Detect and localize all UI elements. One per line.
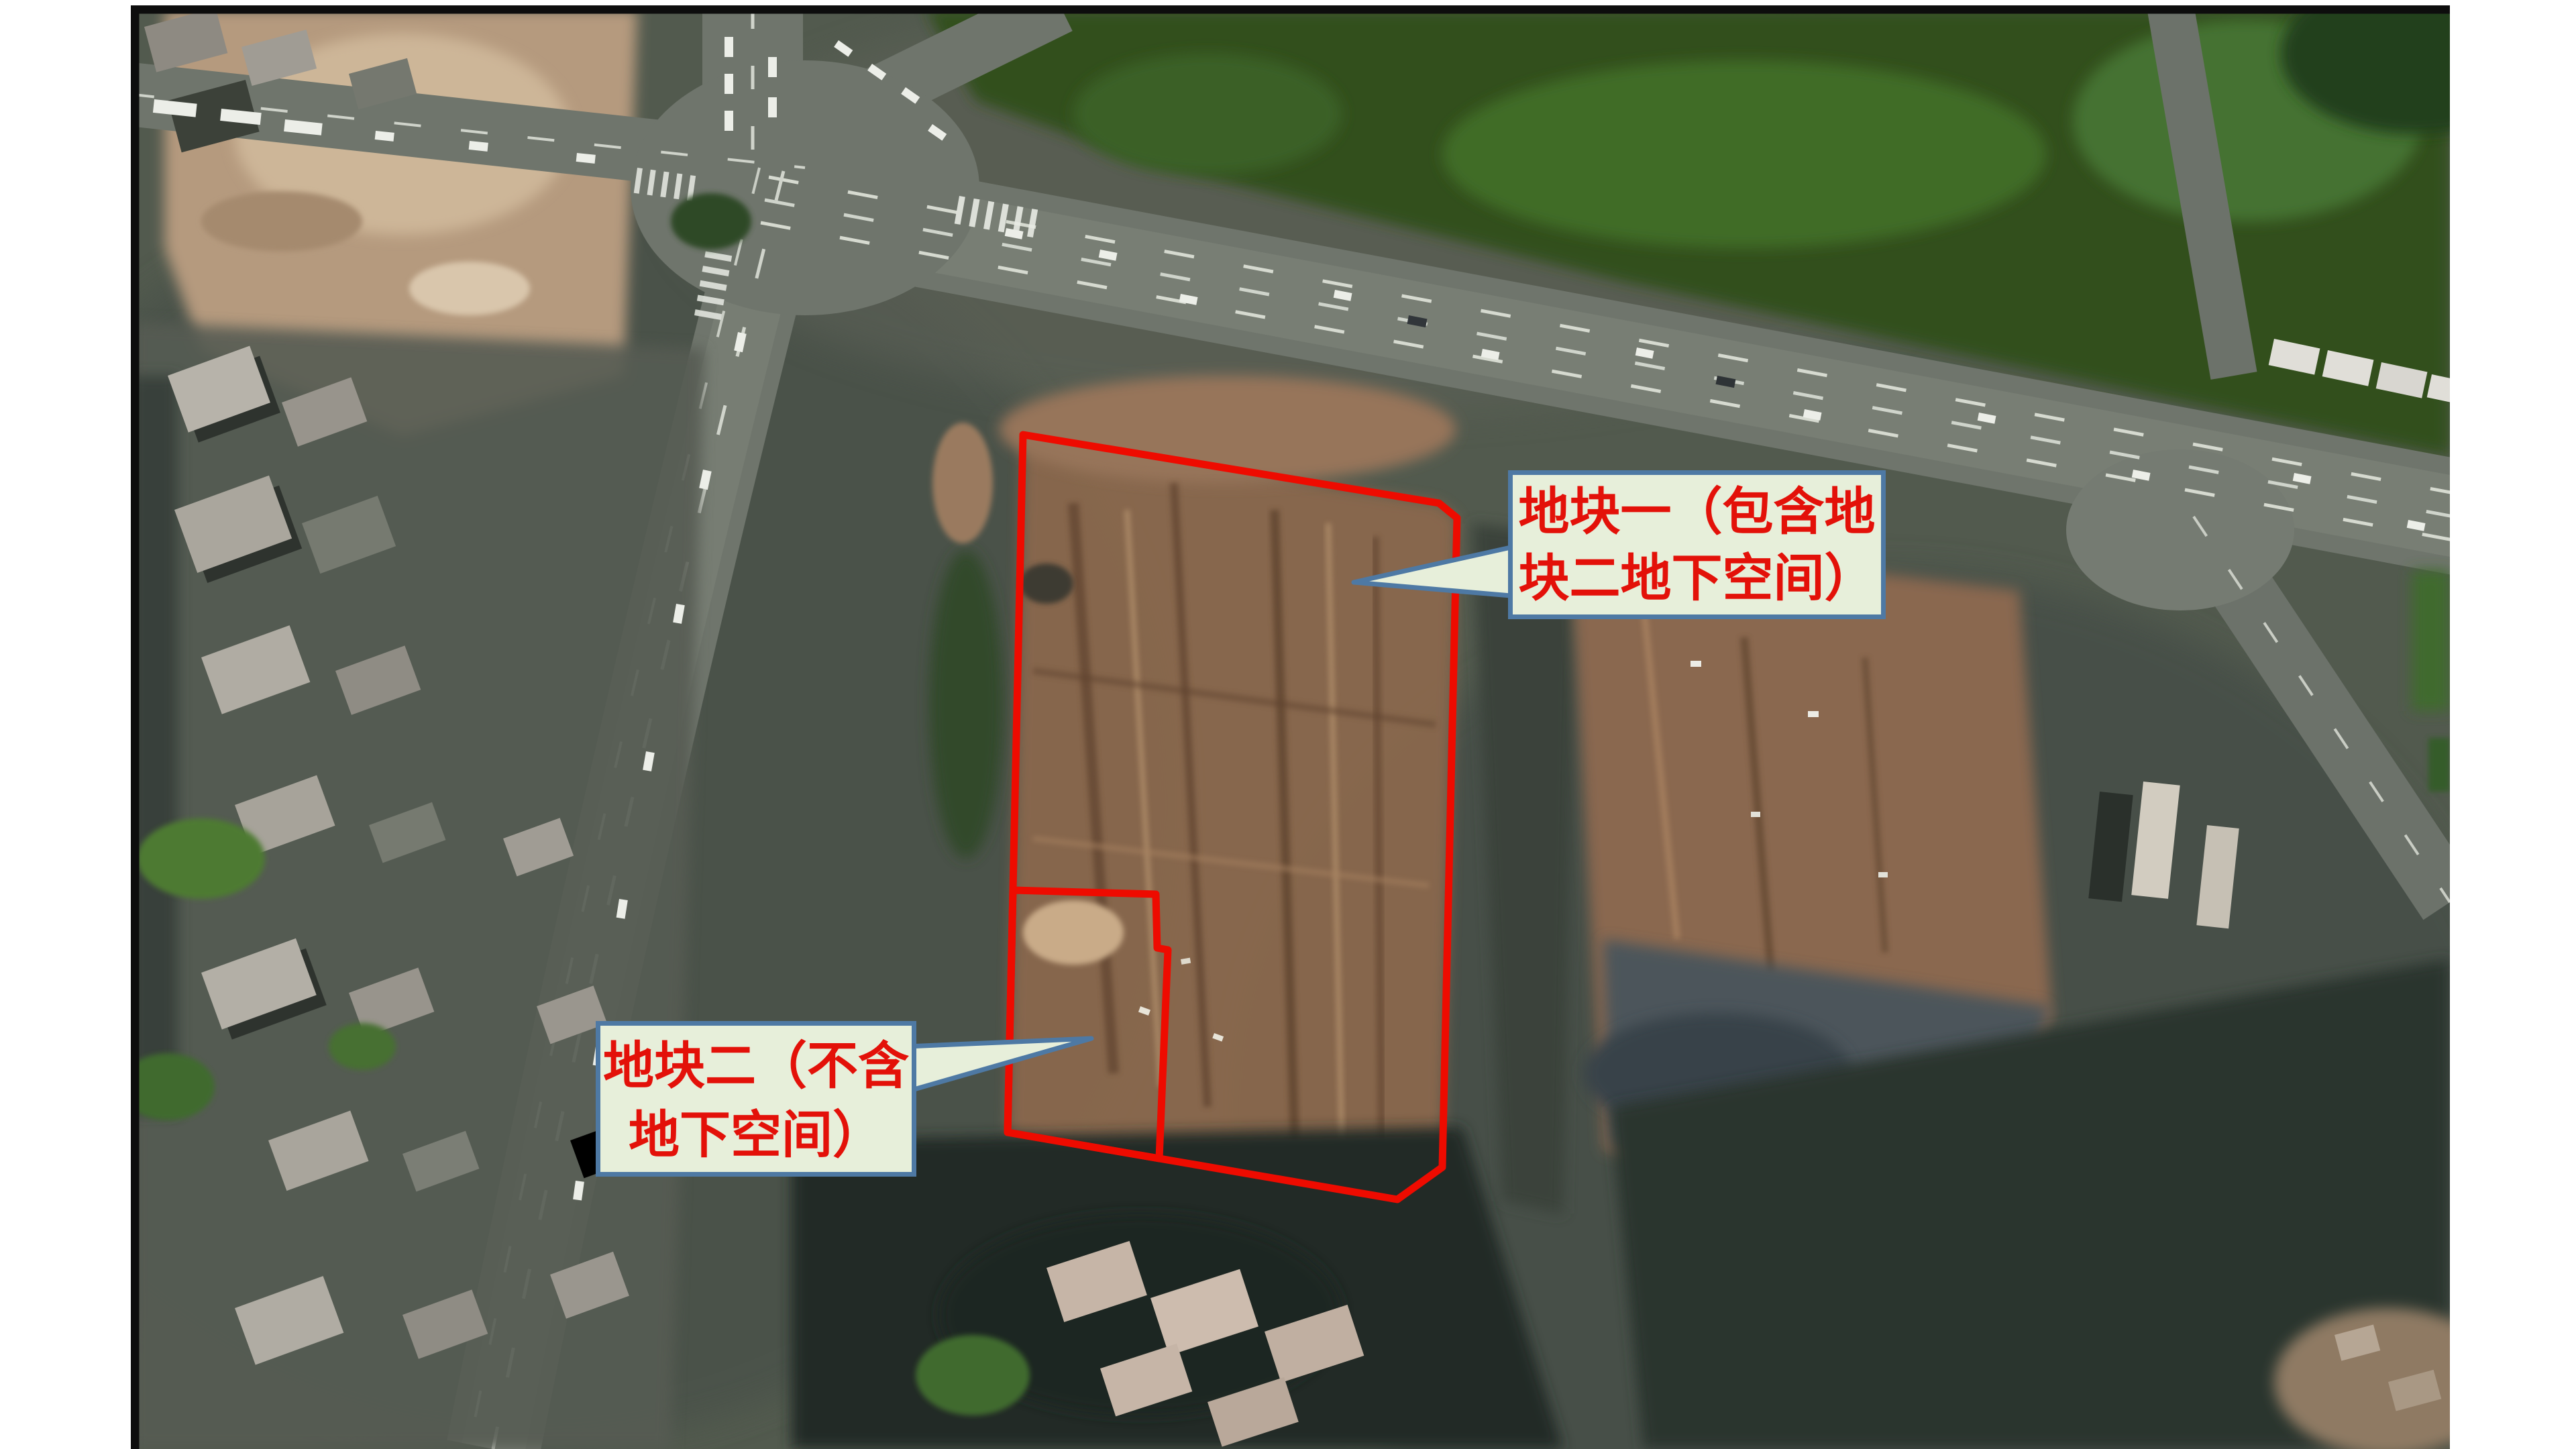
annotation-overlay (0, 0, 2576, 1449)
callout-parcel-2-pointer (907, 1038, 1091, 1091)
slide-canvas: 地块一（包含地 块二地下空间） 地块二（不含 地下空间） (0, 0, 2576, 1449)
callout-parcel-1-pointer (1354, 547, 1511, 596)
callout-parcel-2-line-2: 地下空间） (600, 1101, 912, 1170)
parcel-2-outline (1008, 890, 1168, 1159)
callout-parcel-1-line-1: 地块一（包含地 (1513, 479, 1881, 545)
callout-parcel-2-line-1: 地块二（不含 (600, 1032, 912, 1101)
callout-parcel-2: 地块二（不含 地下空间） (596, 1021, 916, 1177)
callout-parcel-1-line-2: 块二地下空间） (1513, 545, 1881, 612)
callout-parcel-1: 地块一（包含地 块二地下空间） (1508, 470, 1886, 619)
parcel-1-outline (1008, 435, 1457, 1199)
